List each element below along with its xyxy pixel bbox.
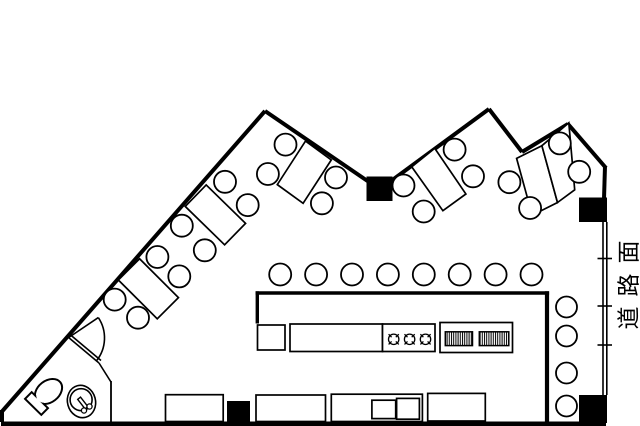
svg-text:道路面: 道路面 bbox=[616, 231, 640, 330]
